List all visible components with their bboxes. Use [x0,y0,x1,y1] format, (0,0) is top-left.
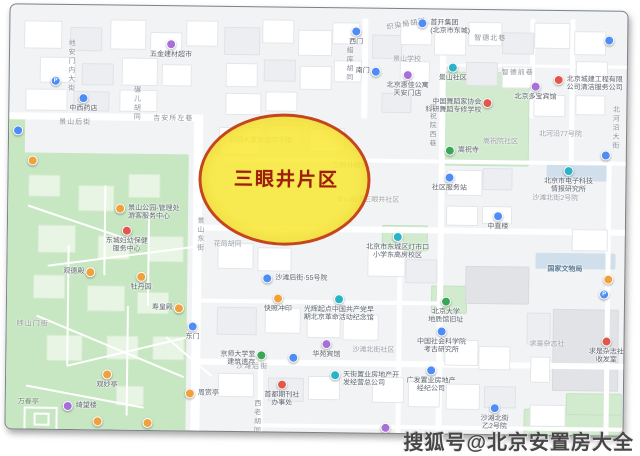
street-label: 嵩祝院社区 [483,136,518,146]
poi-marker-icon[interactable] [334,294,344,304]
poi-label: 寿皇殿 [63,303,173,313]
poi-label: 求是杂志社 收发室 [551,348,628,366]
map-canvas[interactable]: 地安门内大街碾儿胡同景山后街吉安所左巷织染局胡同蜡库胡同智德北巷智德前巷嵩祝院西… [4,3,628,437]
poi-marker-icon[interactable] [601,150,611,160]
poi-label: 东门 [138,333,248,343]
poi-marker-icon[interactable] [604,36,614,46]
poi-label: 绮望楼 [76,402,186,412]
poi-label: 嵩祝寺 [458,147,568,157]
parking-marker-icon[interactable]: P [51,76,61,86]
poi-marker-icon[interactable] [441,297,451,307]
poi-label: 沙滩后街·55号院 [275,275,385,285]
poi-marker-icon[interactable] [262,273,272,283]
poi-marker-icon[interactable] [444,173,454,183]
poi-marker-icon[interactable] [185,388,195,398]
poi-label: 北京惠佳公寓 天安门店 [352,81,462,99]
poi-marker-icon[interactable] [351,26,361,36]
poi-marker-icon[interactable] [102,369,112,379]
poi-marker-icon[interactable] [601,336,611,346]
poi-label: 牡丹园 [86,283,196,293]
poi-marker-icon[interactable] [63,401,73,411]
poi-label: 北京大学 地质馆旧址 [391,308,501,326]
poi-marker-icon[interactable] [136,272,146,282]
poi-label: 中国社会科学院 考古研究所 [386,338,496,356]
poi-label: 京师大学堂 建筑遗存 [145,350,255,368]
poi-marker-icon[interactable] [188,321,198,331]
street-label: 北河沿77号院 [539,129,582,140]
poi-marker-icon[interactable] [277,380,287,390]
page: { "overlay": { "label": "三眼井片区", "fill":… [0,0,640,456]
poi-marker-icon[interactable] [166,39,176,49]
street-label: 北河沿大街 [610,106,621,151]
poi-marker-icon[interactable] [448,63,458,73]
poi-label: 首都期刊社 办事处 [227,391,337,409]
pavilion-inner [33,413,49,426]
poi-label: 中直楼 [443,223,553,233]
poi-label: 西门 [301,38,411,48]
poi-marker-icon[interactable] [273,293,283,303]
poi-label: 中西药店 [28,104,138,114]
street-label: 地安门内大街 [66,39,77,93]
poi-marker-icon[interactable] [493,211,503,221]
street-label: 碾儿胡同 [131,86,141,122]
highlight-ellipse: 三眼井片区 [198,113,372,247]
poi-label: 观德殿 [4,267,84,277]
watermark: 搜狐号@北京安置房大全 [403,426,634,455]
street-label: 花局胡同 [214,239,242,249]
poi-marker-icon[interactable] [393,232,403,242]
poi-label: 东城妇幼保健 服务中心 [72,237,182,255]
poi-marker-icon[interactable] [115,204,125,214]
poi-label: 北京多宝宾馆 [480,93,590,103]
poi-marker-icon[interactable] [174,303,184,313]
poi-marker-icon[interactable] [256,350,266,360]
poi-marker-icon[interactable] [554,75,564,85]
poi-marker-icon[interactable] [330,370,340,380]
poi-label: 北京市电子科技 情报研究所 [513,177,623,195]
parking-marker-icon[interactable]: P [599,289,609,299]
street-label: 景山后街 [59,117,91,127]
street-label: 万春亭 [18,396,39,406]
highlight-label: 三眼井片区 [234,163,339,191]
poi-marker-icon[interactable] [531,82,541,92]
poi-marker-icon[interactable] [288,353,298,363]
poi-label: 中国舞蹈家协会 科研舞蹈专修学校 [371,98,481,116]
poi-marker-icon[interactable] [78,93,88,103]
poi-marker-icon[interactable] [142,418,152,428]
poi-marker-icon[interactable] [85,267,95,277]
poi-label: 社区服务站 [394,184,504,194]
poi-marker-icon[interactable] [603,275,613,285]
poi-marker-icon[interactable] [445,146,455,156]
poi-marker-icon[interactable] [437,326,447,336]
poi-label: 北京城建工程有限 公司清洁服务公司 [567,76,629,94]
poi-label: 天街置业房地产开 发经营总公司 [343,371,453,389]
poi-marker-icon[interactable] [371,67,381,77]
poi-label: 观妙亭 [52,381,162,391]
poi-label: 光辉起点中国共产党早 期北京革命活动纪念馆 [284,306,394,324]
poi-marker-icon[interactable] [92,416,102,426]
street-label: 陟山门街 [17,318,49,328]
street-label: 吉安所左巷 [153,113,193,123]
pavilion-structure [23,406,57,431]
poi-label: 北京市东城区灯市口 小学东高房校区 [343,243,453,261]
poi-label: 首开集团 (北京市东城) [430,19,540,37]
poi-marker-icon[interactable] [28,155,38,165]
poi-marker-icon[interactable] [564,166,574,176]
poi-marker-icon[interactable] [321,339,331,349]
poi-label: 五金建材超市 [116,51,226,61]
poi-marker-icon[interactable] [122,226,132,236]
poi-marker-icon[interactable] [490,403,500,413]
poi-label: 南门 [260,66,370,76]
street-label: 景山学校 [393,54,421,64]
poi-marker-icon[interactable] [417,18,427,28]
poi-marker-icon[interactable] [13,125,23,135]
poi-label: 景山社区 [398,74,508,84]
poi-marker-icon[interactable] [380,423,390,433]
street-label: 国家文物局 [547,264,582,274]
street-label: 蜡库胡同 [344,46,354,82]
